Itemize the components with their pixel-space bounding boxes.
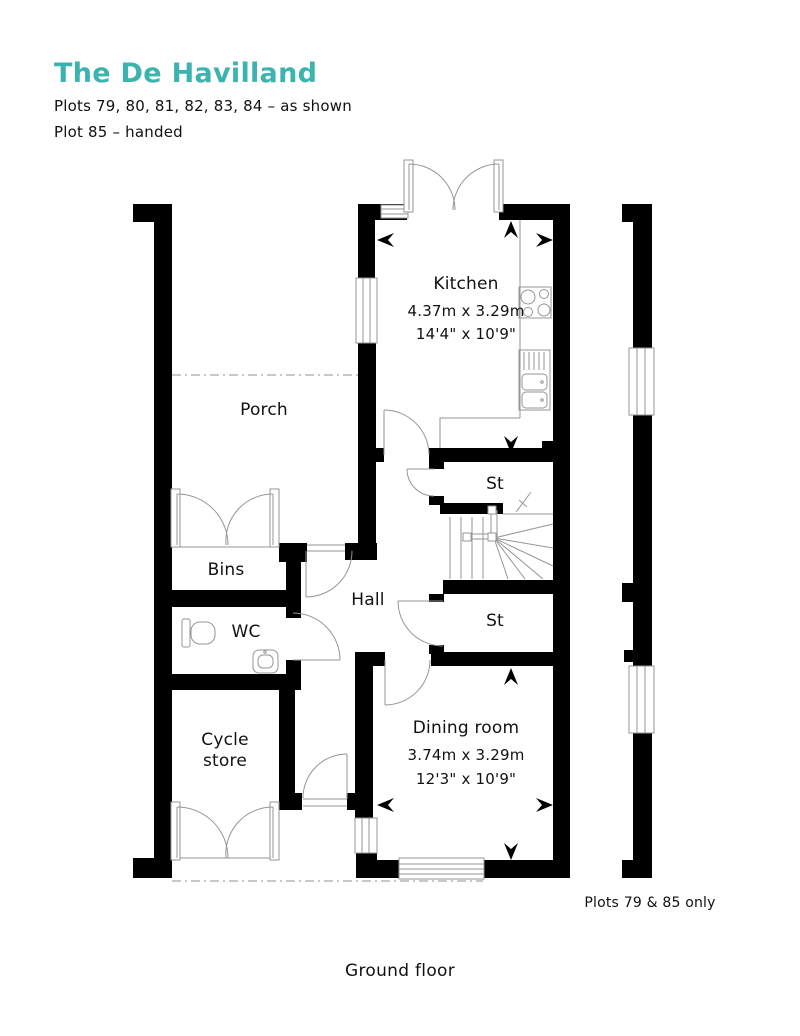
wall-dining-bottom-left <box>373 860 400 878</box>
double-doors-cycle-store <box>171 802 279 860</box>
room-label-hall: Hall <box>351 590 384 610</box>
toilet-icon <box>182 619 215 647</box>
stairs-up-mark <box>516 492 531 512</box>
wall-wc-right-upper <box>286 562 301 618</box>
wall-strip-middle <box>633 414 652 666</box>
kitchen-dim-arrow-left-icon <box>377 233 394 247</box>
room-label-store2: St <box>486 611 504 631</box>
store1-door <box>407 469 434 496</box>
dining-dim-arrow-up-icon <box>504 668 518 685</box>
wall-dining-top-stub <box>373 652 385 666</box>
room-label-porch: Porch <box>240 400 288 420</box>
dining-dimensions-metric: 3.74m x 3.29m <box>407 746 524 764</box>
wall-front-door-tab <box>345 543 377 560</box>
rear-door <box>303 754 347 806</box>
floorplan-page: The De Havilland Plots 79, 80, 81, 82, 8… <box>0 0 800 1036</box>
window-dining-bottom <box>399 858 484 879</box>
wall-store1-stub-top <box>429 462 444 469</box>
wall-kitchen-bottom-stub <box>373 448 384 462</box>
wall-dining-top <box>431 652 553 666</box>
window-dining-left <box>355 818 377 853</box>
walls <box>133 204 652 878</box>
dining-dimensions-imperial: 12'3" x 10'9" <box>416 770 516 788</box>
wall-strip-bottom-tab <box>622 860 633 878</box>
wall-strip-tab-2 <box>624 650 633 662</box>
kitchen-dim-arrow-right-icon <box>536 233 553 247</box>
window-strip-upper <box>629 348 654 415</box>
room-label-kitchen: Kitchen <box>433 274 498 294</box>
sink-icon <box>519 350 550 410</box>
basin-icon <box>253 650 278 673</box>
dining-door <box>385 660 430 705</box>
wall-back-door-left <box>279 793 302 810</box>
wall-kitchen-bottom <box>429 448 542 462</box>
kitchen-dimensions-metric: 4.37m x 3.29m <box>407 302 524 320</box>
plots-only-note: Plots 79 & 85 only <box>584 895 715 911</box>
double-doors-bins <box>171 489 279 547</box>
floorplan-drawing <box>0 0 800 1036</box>
wall-dining-bottom-right <box>483 860 553 878</box>
wc-door <box>293 613 340 660</box>
wall-kitchen-left-upper <box>358 204 375 280</box>
wall-strip-lower <box>633 732 652 878</box>
room-label-bins: Bins <box>208 560 245 580</box>
wall-dining-left <box>355 652 373 820</box>
room-label-dining: Dining room <box>413 718 519 738</box>
wall-bins-wc-divider <box>154 590 286 607</box>
wall-kitchen-bottom-step <box>542 441 570 462</box>
wall-cycle-right <box>279 690 295 793</box>
window-strip-lower <box>629 666 654 733</box>
dining-dim-arrow-right-icon <box>536 798 553 812</box>
wall-left <box>154 204 172 878</box>
room-label-store1: St <box>486 474 504 494</box>
wall-right <box>553 204 570 878</box>
dining-dim-arrow-down-icon <box>504 843 518 860</box>
wall-wc-cycle-divider <box>154 674 299 690</box>
wall-strip-upper <box>633 204 652 350</box>
dining-dim-arrow-left-icon <box>377 798 394 812</box>
wall-strip-tab-1 <box>622 583 633 602</box>
wc-fittings <box>182 619 278 673</box>
room-label-cycle-store: Cycle store <box>183 730 267 773</box>
wall-stairs-store2 <box>443 580 553 594</box>
window-kitchen-left <box>356 278 377 343</box>
floor-label: Ground floor <box>345 961 455 981</box>
wall-bins-right <box>279 543 307 562</box>
kitchen-door <box>384 410 429 455</box>
store2-door <box>398 601 443 646</box>
french-doors-kitchen <box>404 160 503 212</box>
kitchen-dim-arrow-up-icon <box>504 221 518 238</box>
room-label-wc: WC <box>231 622 260 642</box>
kitchen-dimensions-imperial: 14'4" x 10'9" <box>416 325 516 343</box>
wall-bottom-left-tab <box>133 858 172 878</box>
